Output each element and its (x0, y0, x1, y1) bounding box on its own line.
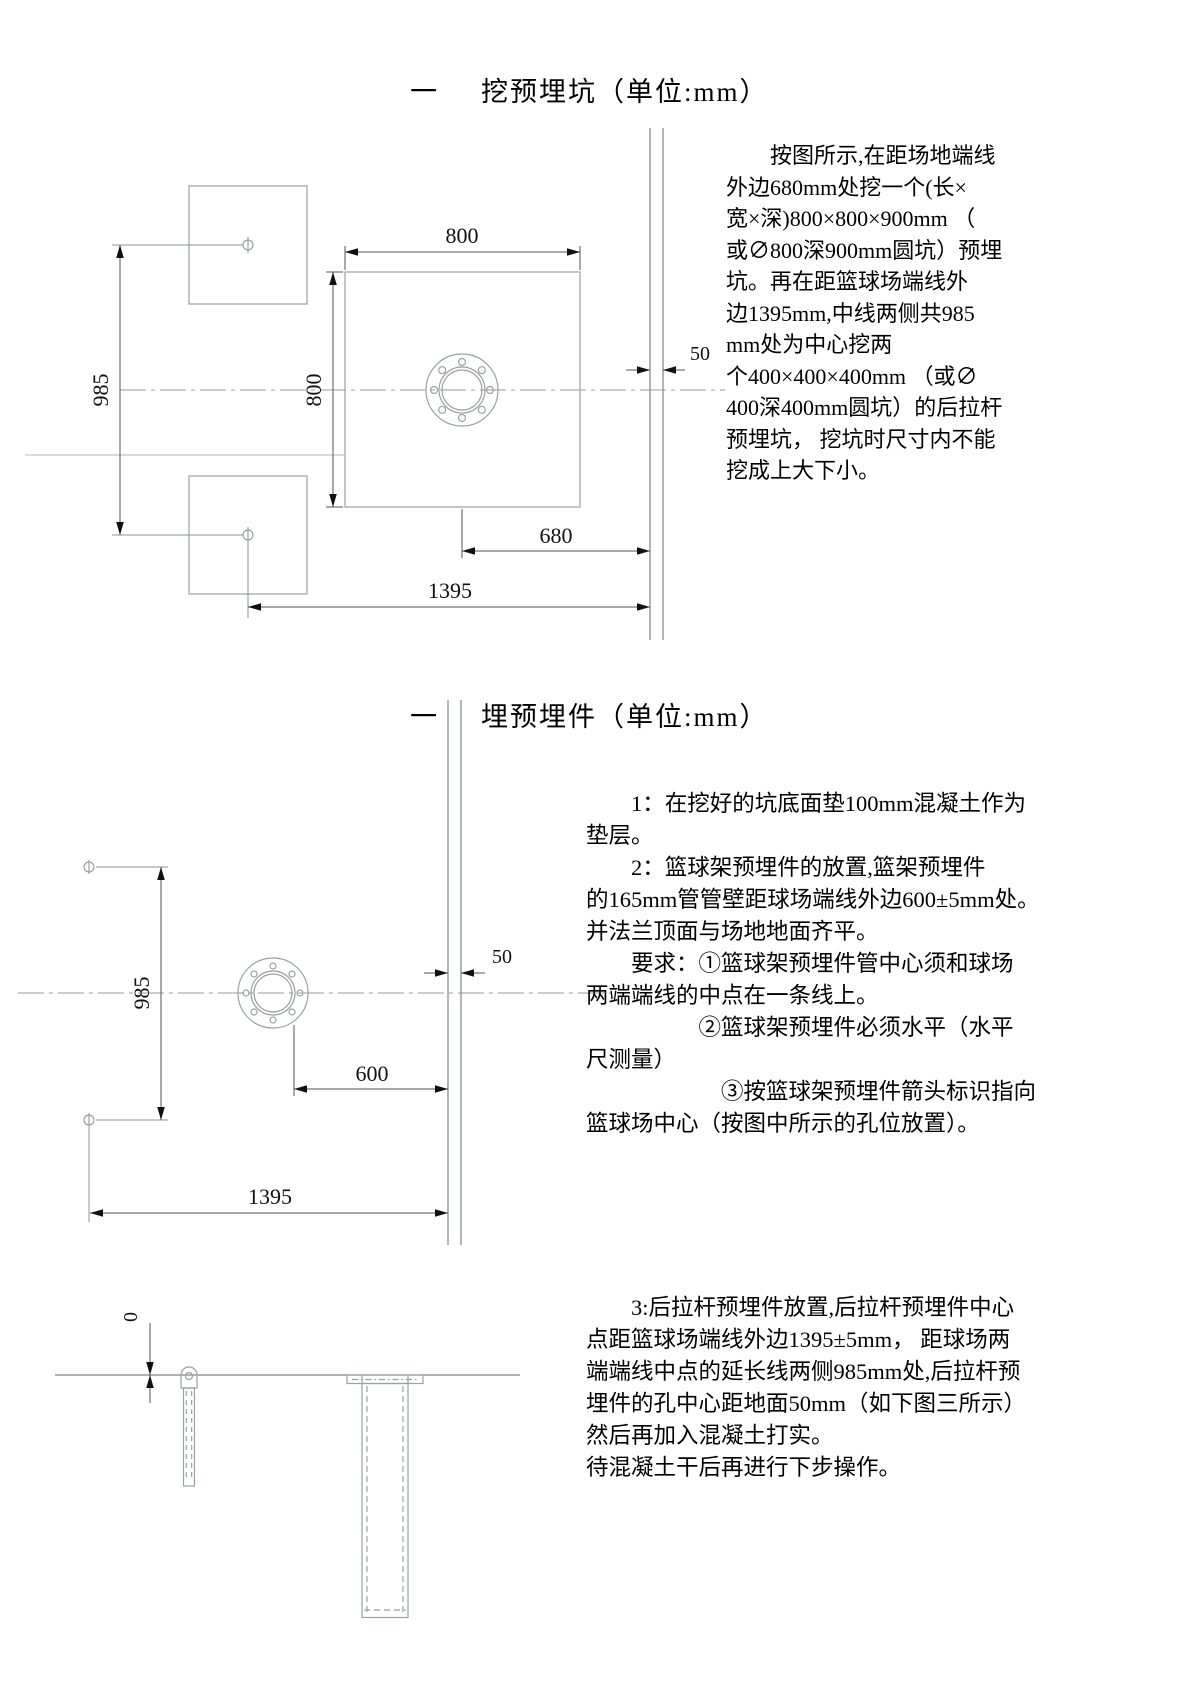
section1-instructions: 按图所示,在距场地端线 外边680mm处挖一个(长× 宽×深)800×800×9… (726, 140, 1106, 487)
dim-800-top (345, 246, 580, 270)
section1-title-text: 挖预埋坑（单位:mm） (481, 77, 769, 107)
pit-center-markers (112, 237, 253, 618)
dim-label-50: 50 (690, 343, 710, 365)
installation-instruction-page: 985 800 800 680 (0, 0, 1200, 1697)
section2-title-text: 埋预埋件（单位:mm） (481, 702, 769, 732)
dim-label-50: 50 (492, 946, 512, 968)
dim-label-800-top: 800 (446, 223, 479, 248)
embed-plan-diagram: 985 50 600 1395 (18, 700, 612, 1245)
dim-label-985: 985 (88, 374, 113, 407)
backrod-embed-part (181, 1367, 197, 1486)
section1-title-number: 一 (410, 70, 439, 109)
section2-title-number: 一 (410, 695, 439, 734)
dim-label-600: 600 (356, 1061, 389, 1086)
section3-instructions: 3:后拉杆预埋件放置,后拉杆预埋件中心 点距篮球场端线外边1395±5mm， 距… (586, 1292, 1106, 1484)
dim-label-680: 680 (540, 523, 573, 548)
section1-title: 一挖预埋坑（单位:mm） (410, 70, 769, 109)
pipe-embed-part (347, 1375, 423, 1618)
dim-label-0: 0 (120, 1312, 142, 1322)
section2-title: 一埋预埋件（单位:mm） (410, 695, 769, 734)
side-elevation-diagram: 0 (55, 1312, 520, 1618)
pit-plan-diagram: 985 800 800 680 (25, 128, 725, 640)
dim-label-1395: 1395 (248, 1184, 292, 1209)
dim-label-800-left: 800 (301, 374, 326, 407)
section2-instructions: 1：在挖好的坑底面垫100mm混凝土作为 垫层。 2：篮球架预埋件的放置,篮架预… (586, 788, 1106, 1140)
backrod-markers (84, 860, 168, 1222)
dim-label-1395: 1395 (428, 578, 472, 603)
dim-label-985: 985 (129, 977, 154, 1010)
